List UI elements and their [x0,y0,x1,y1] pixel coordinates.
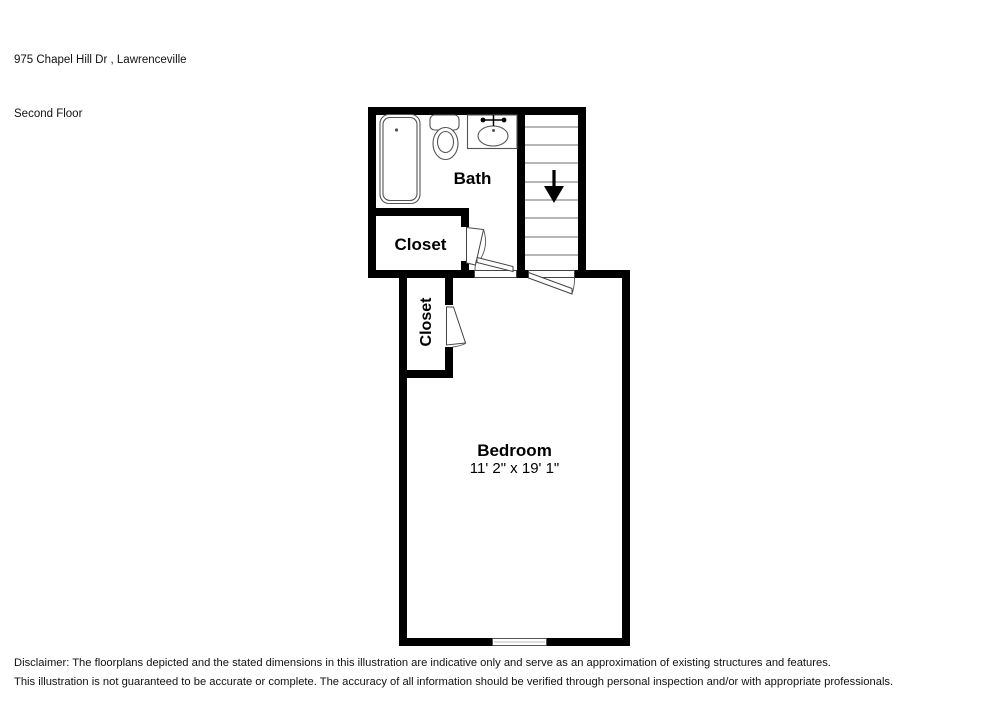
disclaimer-line1: Disclaimer: The floorplans depicted and … [14,654,974,673]
upper-closet-label: Closet [376,235,465,255]
sink-icon [468,115,518,149]
wall-bedroom-left [399,270,407,646]
bedroom-name: Bedroom [407,442,622,460]
wall-bath-stairs-divider [517,115,525,278]
toilet-icon [430,115,459,160]
down-arrow-icon [544,170,564,203]
bath-room-label: Bath [430,169,515,189]
wall-closet2-right-a [445,278,453,305]
window-icon [493,639,547,646]
bedroom-label-block: Bedroom 11' 2" x 19' 1" [407,442,622,477]
wall-closet1-top [368,208,469,216]
floorplan-page: 975 Chapel Hill Dr , Lawrenceville Secon… [0,0,1000,707]
wall-bedroom-top-b [517,270,528,278]
wall-bedroom-bottom-b [547,638,630,646]
bathtub-icon [380,115,420,204]
wall-closet1-right-a [461,208,469,227]
bath-door-threshold [475,271,517,278]
floorplan-drawing [0,0,1000,707]
wall-stairs-right [578,107,586,278]
bedroom-dimensions: 11' 2" x 19' 1" [407,460,622,477]
wall-bedroom-right [622,270,630,646]
bath-door-swing [475,258,513,272]
closet2-door-swing [447,307,466,347]
disclaimer-line2: This illustration is not guaranteed to b… [14,673,974,692]
wall-bedroom-bottom-a [399,638,492,646]
wall-top [368,107,586,115]
wall-bedroom-top-c [575,270,630,278]
disclaimer: Disclaimer: The floorplans depicted and … [14,654,974,692]
wall-left-upper [368,107,376,278]
lower-closet-label: Closet [418,262,436,382]
